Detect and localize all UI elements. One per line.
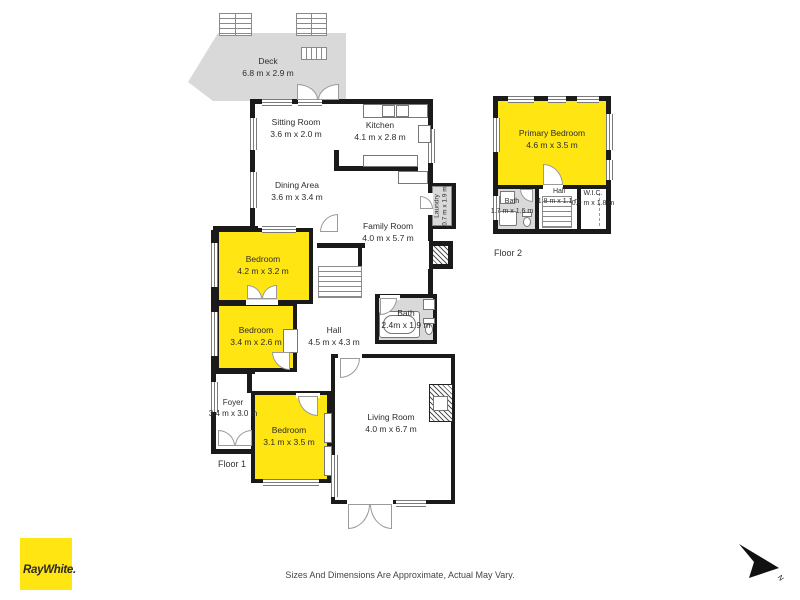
window (211, 243, 218, 287)
room-label-foyer: Foyer 3.4 m x 3.0 m (209, 397, 257, 419)
disclaimer-text: Sizes And Dimensions Are Approximate, Ac… (0, 570, 800, 580)
room-dims: 3.6 m x 2.0 m (270, 129, 322, 141)
room-label-living: Living Room 4.0 m x 6.7 m (365, 412, 417, 436)
room-name: Family Room (363, 221, 413, 233)
room-label-primary: Primary Bedroom 4.6 m x 3.5 m (519, 128, 585, 152)
room-label-family: Family Room 4.0 m x 5.7 m (362, 221, 414, 245)
room-dims: 4.0 m x 5.7 m (362, 233, 414, 245)
room-dims: 4.6 m x 3.5 m (526, 140, 578, 152)
wardrobe (324, 413, 332, 443)
room-label-bedroom1: Bedroom 4.2 m x 3.2 m (237, 254, 289, 278)
wall (428, 269, 433, 296)
floorplan-page: { "deck": {"name": "Deck", "dims": "6.8 … (0, 0, 800, 600)
room-name: W.I.C. (583, 189, 602, 199)
room-label-wic: W.I.C. 0.9 m x 1.8 m (572, 189, 614, 209)
room-name: Bath (397, 308, 415, 320)
kitchen-sink (396, 105, 409, 117)
room-label-bedroom2: Bedroom 3.4 m x 2.6 m (230, 325, 282, 349)
fireplace-box (433, 396, 448, 411)
window (250, 118, 257, 150)
window (262, 226, 296, 233)
room-label-kitchen: Kitchen 4.1 m x 2.8 m (354, 120, 406, 144)
room-label-deck: Deck 6.8 m x 2.9 m (242, 56, 294, 80)
room-label-bath1: Bath 2.4m x 1.9 m (381, 308, 430, 332)
room-dims: 6.8 m x 2.9 m (242, 68, 294, 80)
room-name: Living Room (367, 412, 414, 424)
floor2-label: Floor 2 (494, 248, 522, 258)
room-name: Bath (505, 197, 519, 207)
wall (358, 243, 362, 268)
window (331, 455, 338, 497)
window (493, 118, 500, 152)
room-dims: 4.2 m x 3.2 m (237, 266, 289, 278)
svg-text:N: N (776, 574, 785, 582)
window (250, 172, 257, 208)
room-dims: 4.5 m x 4.3 m (308, 337, 360, 349)
raywhite-logo: RayWhite. (20, 538, 72, 590)
foyer-door-arc (235, 430, 252, 446)
wardrobe (283, 329, 298, 353)
room-name: Hall (553, 187, 565, 197)
deck-stairs-right (296, 13, 327, 36)
floor1-label: Floor 1 (218, 459, 246, 469)
window (508, 96, 534, 103)
room-name: Foyer (223, 397, 243, 408)
kitchen-bench (363, 155, 418, 167)
north-arrow: N (733, 536, 788, 593)
room-name: Laundry (434, 194, 442, 218)
room-label-bedroom3: Bedroom 3.1 m x 3.5 m (263, 425, 315, 449)
window (262, 99, 292, 106)
window (548, 96, 566, 103)
door-gap (246, 300, 278, 305)
deck-stairs-left (219, 13, 252, 36)
window (577, 96, 599, 103)
entry-door-arc (370, 504, 392, 529)
room-dims: 1.7 m x 1.6 m (491, 207, 533, 217)
room-dims: 3.4 m x 3.0 m (209, 408, 257, 419)
kitchen-sink (382, 105, 395, 117)
room-name: Dining Area (275, 180, 319, 192)
window (396, 500, 426, 507)
chimney-hatch (433, 246, 448, 264)
room-dims: 0.7 m x 1.9 m (442, 186, 450, 225)
foyer-door-arc (218, 430, 235, 446)
room-name: Hall (327, 325, 342, 337)
room-name: Primary Bedroom (519, 128, 585, 140)
room-dims: 3.4 m x 2.6 m (230, 337, 282, 349)
room-dims: 4.1 m x 2.8 m (354, 132, 406, 144)
window (211, 312, 218, 356)
hall-door-arc (320, 214, 338, 232)
room-name: Kitchen (366, 120, 394, 132)
stove (418, 125, 431, 143)
room-dims: 3.6 m x 3.4 m (271, 192, 323, 204)
room-dims: 2.4m x 1.9 m (381, 320, 430, 332)
floor-plan: Deck 6.8 m x 2.9 m (0, 0, 800, 600)
room-label-hall1: Hall 4.5 m x 4.3 m (308, 325, 360, 349)
toilet-bowl (523, 217, 531, 227)
kitchen-island (398, 171, 428, 184)
wardrobe (324, 446, 332, 476)
room-dims: 0.9 m x 1.8 m (572, 199, 614, 209)
room-name: Bedroom (239, 325, 274, 337)
room-name: Bedroom (246, 254, 281, 266)
wall (430, 226, 456, 229)
entry-door-arc (348, 504, 370, 529)
room-name: Sitting Room (272, 117, 321, 129)
window (606, 160, 613, 180)
wall (452, 183, 456, 229)
stairs-floor1 (318, 266, 362, 298)
room-label-sitting: Sitting Room 3.6 m x 2.0 m (270, 117, 322, 141)
room-name: Deck (258, 56, 277, 68)
room-name: Bedroom (272, 425, 307, 437)
room-label-bath2: Bath 1.7 m x 1.6 m (491, 197, 533, 217)
window (263, 479, 319, 486)
room-label-dining: Dining Area 3.6 m x 3.4 m (271, 180, 323, 204)
wall (247, 370, 252, 393)
window (298, 99, 322, 106)
window (606, 114, 613, 150)
room-dims: 3.1 m x 3.5 m (263, 437, 315, 449)
deck-inner-steps (301, 47, 327, 60)
room-label-laundry: Laundry 0.7 m x 1.9 m (434, 186, 451, 225)
north-arrow-icon: N (733, 536, 788, 588)
room-dims: 4.0 m x 6.7 m (365, 424, 417, 436)
